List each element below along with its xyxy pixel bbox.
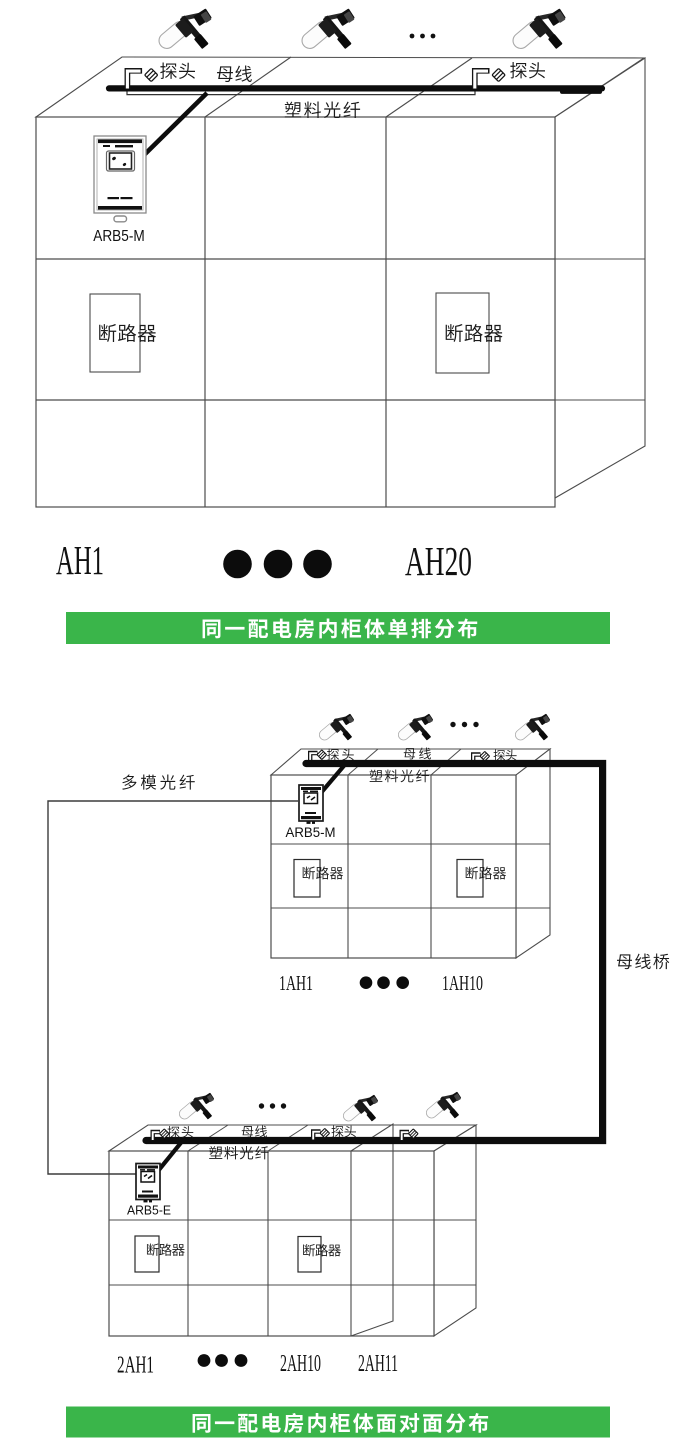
svg-text:AH1: AH1: [56, 537, 104, 583]
svg-text:1AH10: 1AH10: [442, 971, 483, 995]
svg-text:1AH1: 1AH1: [279, 971, 313, 995]
svg-text:2AH1: 2AH1: [117, 1353, 154, 1379]
svg-text:ARB5-M: ARB5-M: [93, 228, 145, 245]
svg-text:ARB5-E: ARB5-E: [127, 1204, 171, 1218]
svg-text:2AH11: 2AH11: [358, 1351, 398, 1377]
svg-text:AH20: AH20: [405, 538, 472, 584]
svg-text:ARB5-M: ARB5-M: [286, 825, 336, 840]
svg-text:2AH10: 2AH10: [280, 1351, 321, 1377]
